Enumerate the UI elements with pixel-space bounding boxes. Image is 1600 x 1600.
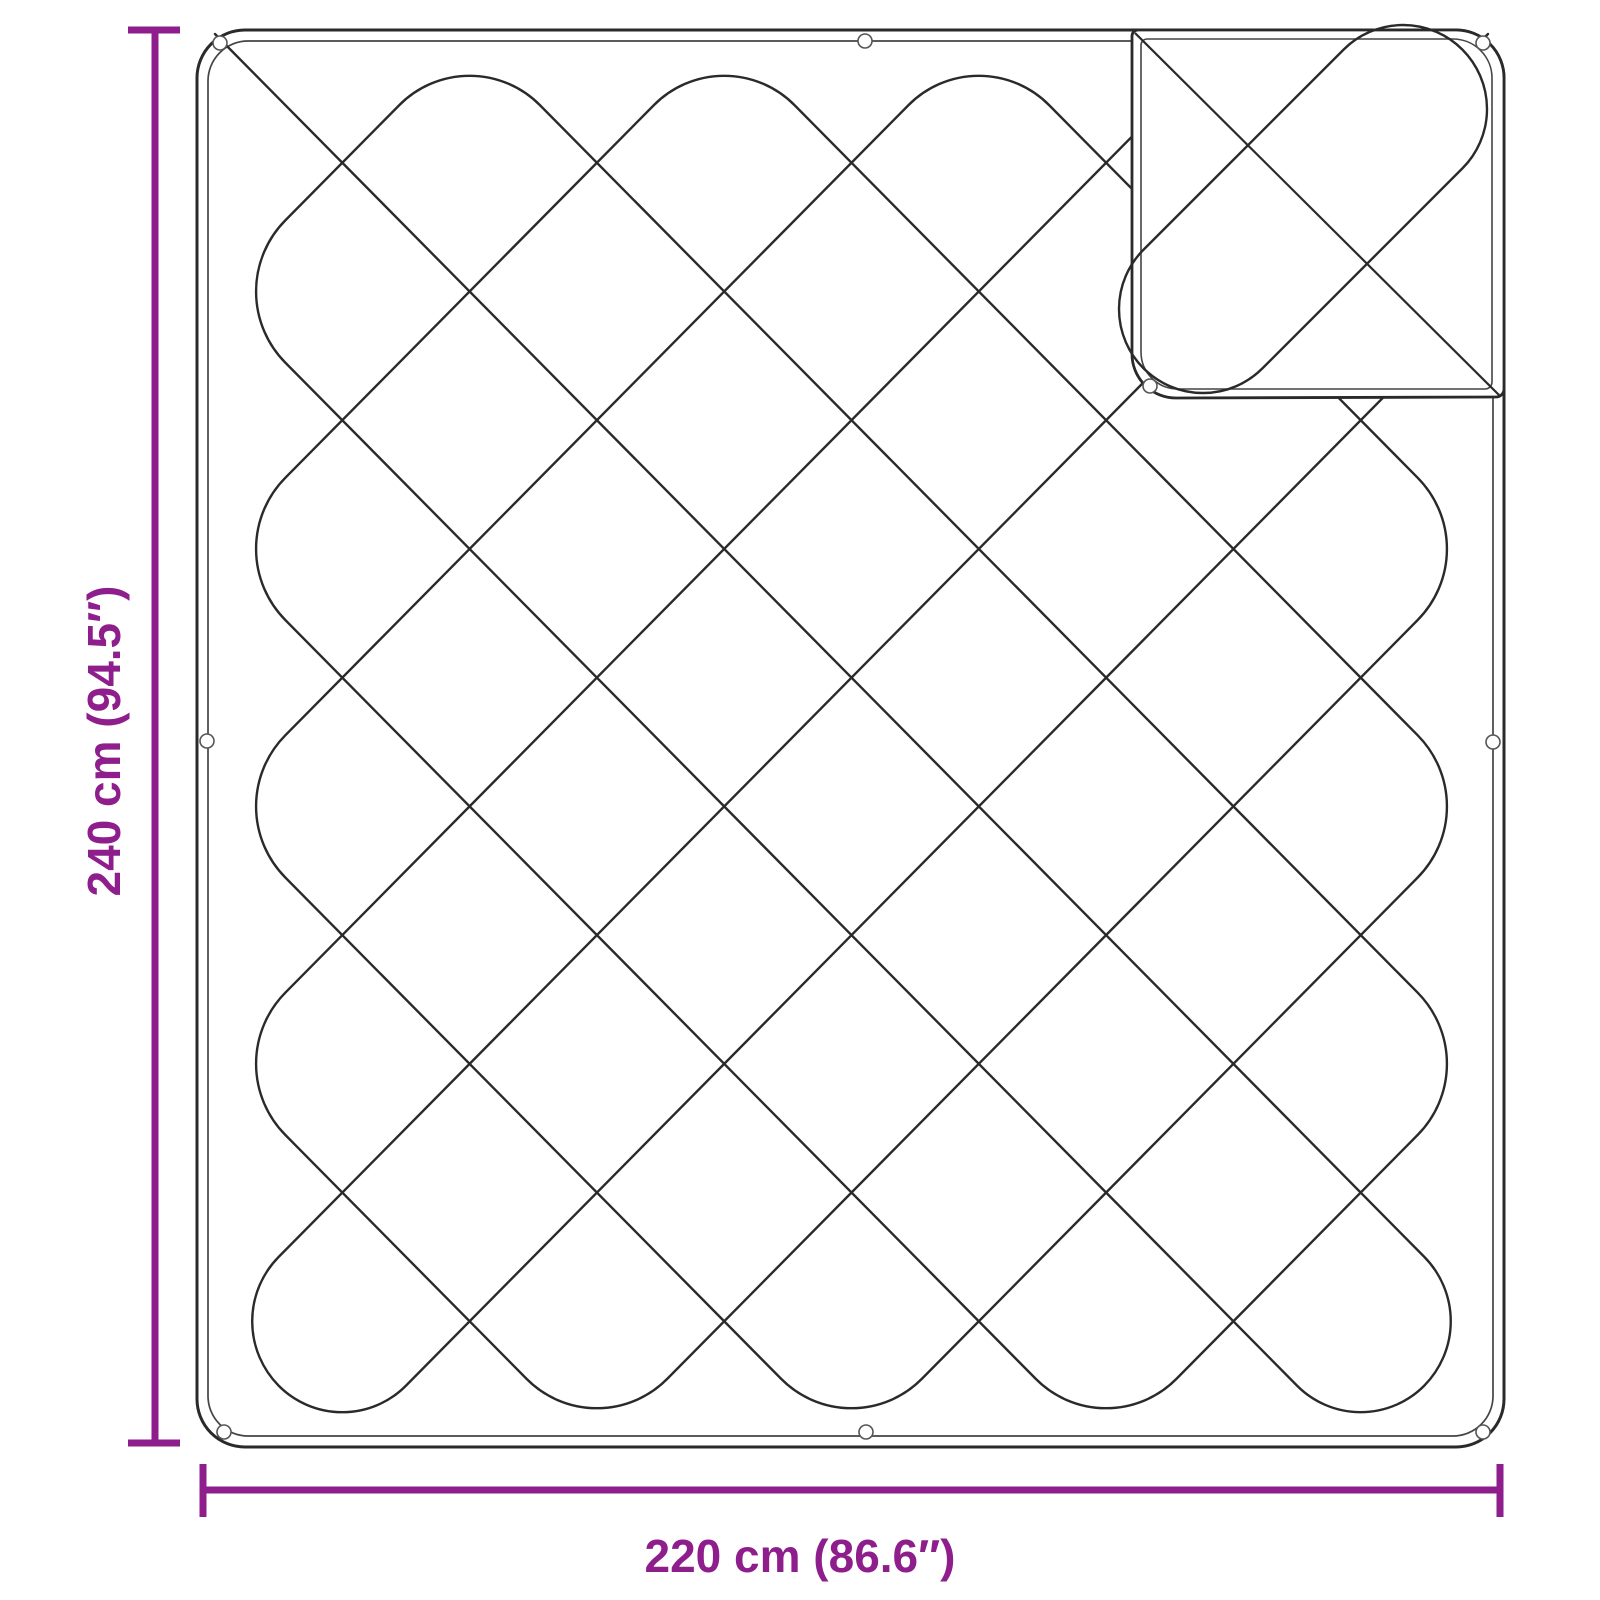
width-dimension: 220 cm (86.6″): [200, 1464, 1504, 1582]
width-dimension-left-cap: [200, 1464, 207, 1517]
folded-corner-flap: [1119, 25, 1504, 398]
product-dimension-diagram: 240 cm (94.5″) 220 cm (86.6″): [0, 0, 1600, 1600]
height-dimension-top-cap: [128, 27, 180, 34]
height-dimension-line: [152, 30, 159, 1443]
height-dimension-bottom-cap: [128, 1440, 180, 1447]
height-dimension-label: 240 cm (94.5″): [78, 586, 130, 897]
width-dimension-right-cap: [1497, 1464, 1504, 1517]
width-dimension-label: 220 cm (86.6″): [645, 1530, 956, 1582]
eyelet: [1476, 36, 1490, 50]
eyelet: [859, 1425, 873, 1439]
eyelet: [200, 734, 214, 748]
eyelet: [217, 1425, 231, 1439]
eyelet: [1143, 379, 1157, 393]
eyelet: [1476, 1425, 1490, 1439]
eyelet: [858, 34, 872, 48]
height-dimension: 240 cm (94.5″): [78, 27, 180, 1447]
diagram-canvas: 240 cm (94.5″) 220 cm (86.6″): [0, 0, 1600, 1600]
width-dimension-line: [203, 1487, 1500, 1494]
eyelet: [1486, 735, 1500, 749]
eyelet: [213, 36, 227, 50]
